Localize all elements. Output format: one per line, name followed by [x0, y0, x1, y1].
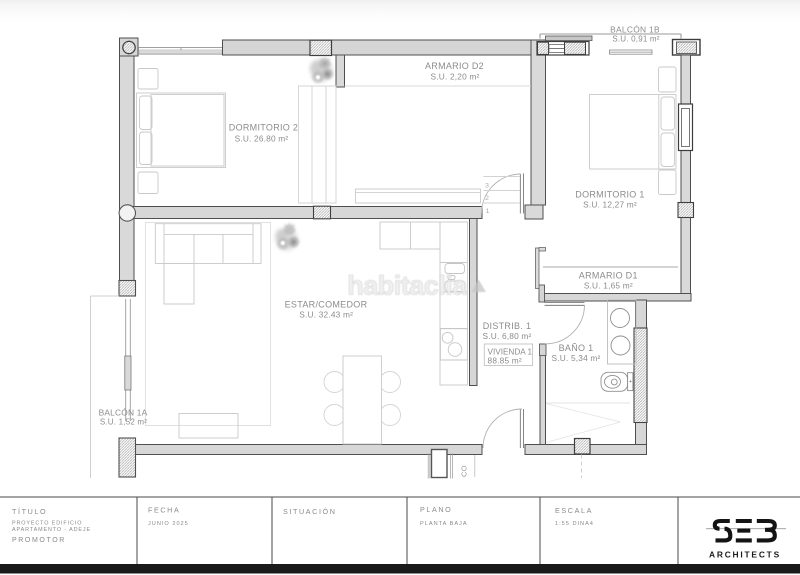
svg-text:APARTAMENTO - ADEJE: APARTAMENTO - ADEJE [12, 527, 91, 533]
svg-text:ESCALA: ESCALA [555, 506, 593, 515]
svg-text:PLANTA BAJA: PLANTA BAJA [420, 521, 468, 527]
svg-text:S.U. 1,65 m²: S.U. 1,65 m² [584, 281, 633, 291]
svg-text:PROMOTOR: PROMOTOR [12, 537, 66, 544]
svg-text:ESTAR/COMEDOR: ESTAR/COMEDOR [285, 299, 368, 309]
svg-text:PLANO: PLANO [420, 505, 452, 514]
svg-text:CO: CO [460, 465, 469, 477]
svg-text:BALCÓN 1B: BALCÓN 1B [610, 25, 660, 35]
svg-text:S.U. 6,80 m²: S.U. 6,80 m² [483, 331, 532, 341]
svg-text:S.U. 1,52 m²: S.U. 1,52 m² [100, 418, 147, 427]
svg-text:ARCHITECTS: ARCHITECTS [709, 550, 781, 560]
svg-text:S.U. 26.80 m²: S.U. 26.80 m² [235, 134, 289, 144]
svg-text:88.85 m²: 88.85 m² [488, 356, 522, 366]
svg-text:2: 2 [485, 195, 489, 202]
svg-text:habitaclia: habitaclia [347, 271, 468, 301]
svg-text:DISTRIB. 1: DISTRIB. 1 [483, 321, 532, 331]
svg-text:DORMITORIO 1: DORMITORIO 1 [575, 190, 644, 200]
svg-text:JUNIO 2025: JUNIO 2025 [148, 521, 189, 527]
svg-text:S.U. 5,34 m²: S.U. 5,34 m² [552, 353, 601, 363]
svg-text:S.U. 32.43 m²: S.U. 32.43 m² [299, 310, 353, 320]
svg-text:BALCÓN 1A: BALCÓN 1A [99, 408, 148, 418]
svg-text:3: 3 [485, 183, 489, 190]
svg-text:DORMITORIO 2: DORMITORIO 2 [229, 123, 298, 133]
svg-text:S.U. 2,20 m²: S.U. 2,20 m² [431, 72, 480, 82]
svg-text:SITUACIÓN: SITUACIÓN [283, 507, 337, 516]
svg-text:TÍTULO: TÍTULO [12, 507, 47, 516]
svg-text:S.U. 12,27 m²: S.U. 12,27 m² [583, 200, 637, 210]
svg-text:1:55 DINA4: 1:55 DINA4 [555, 521, 594, 527]
svg-text:ARMARIO D1: ARMARIO D1 [579, 271, 638, 281]
svg-text:PROYECTO EDIFICIO: PROYECTO EDIFICIO [12, 521, 82, 527]
svg-text:1: 1 [486, 208, 490, 215]
svg-text:FECHA: FECHA [148, 506, 180, 515]
svg-text:ARMARIO D2: ARMARIO D2 [425, 61, 484, 71]
svg-text:BAÑO 1: BAÑO 1 [559, 343, 594, 353]
svg-text:S.U. 0,91 m²: S.U. 0,91 m² [612, 35, 659, 44]
